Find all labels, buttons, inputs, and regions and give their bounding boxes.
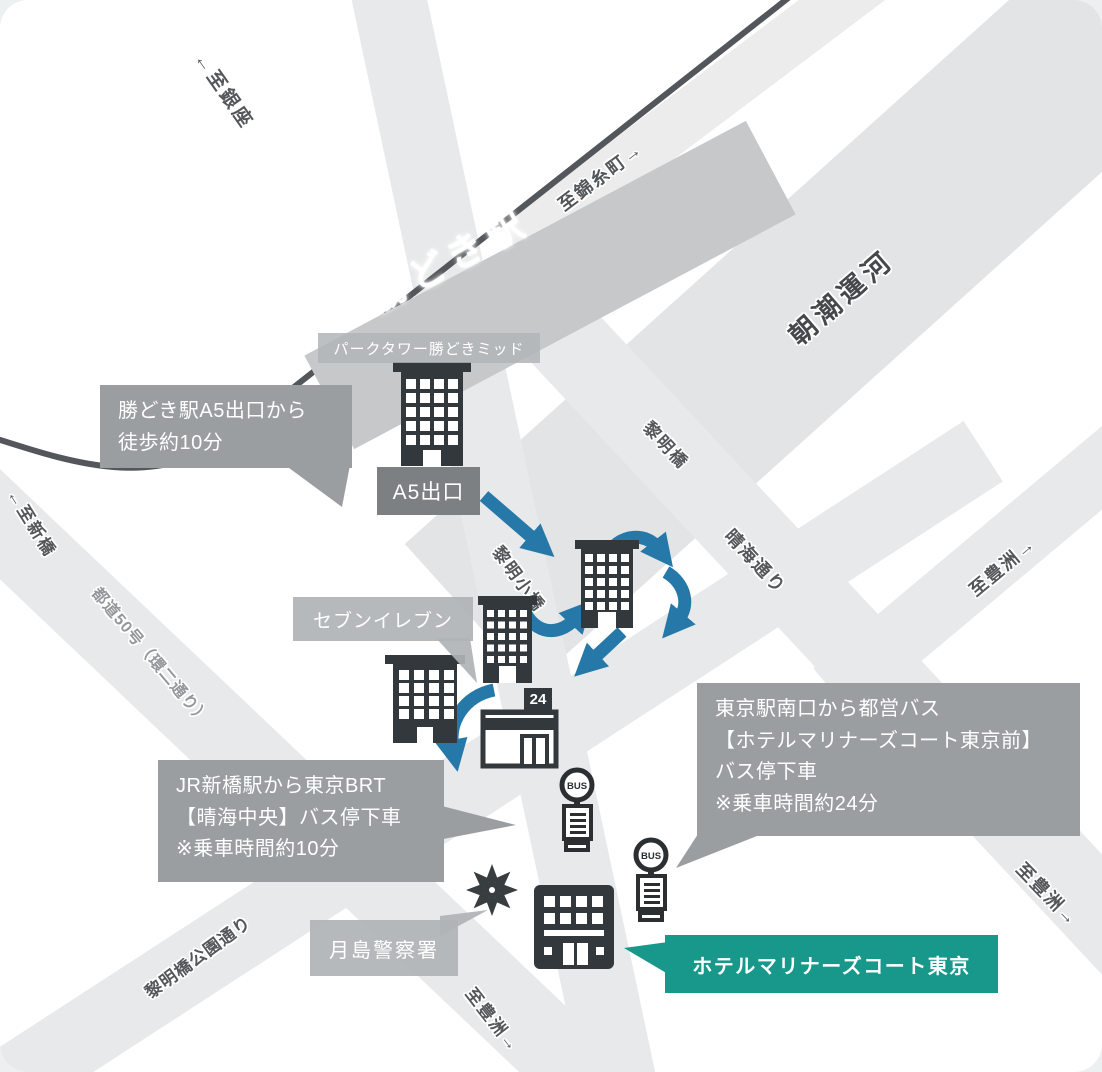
park-tower-label: パークタワー勝どきミッド	[318, 333, 540, 363]
walk-callout-line1: 勝どき駅A5出口から	[118, 396, 334, 428]
park-tower-label-text: パークタワー勝どきミッド	[334, 338, 525, 359]
walk-callout-tail	[280, 465, 360, 515]
a5-exit-label: A5出口	[377, 467, 480, 515]
brt-callout-line1: JR新橋駅から東京BRT	[176, 771, 426, 803]
toei-callout-line3: バス停下車	[715, 757, 1062, 789]
brt-bus-stop-icon: BUS	[556, 766, 600, 854]
police-station-label-tail	[440, 902, 495, 942]
toei-callout: 東京駅南口から都営バス 【ホテルマリナーズコート東京前】 バス停下車 ※乗車時間…	[697, 683, 1080, 836]
access-map: ←至銀座 至錦糸町→ 朝潮運河 勝どき駅 黎明橋 黎明小橋 晴海通り 至豊洲→ …	[0, 0, 1102, 1072]
hotel-label: ホテルマリナーズコート東京	[665, 935, 998, 993]
route-building-icon	[575, 540, 639, 628]
hotel-label-tail	[620, 936, 670, 976]
seven-eleven-label-tail	[432, 638, 482, 688]
seven-eleven-label: セブンイレブン	[293, 597, 473, 641]
park-tower-building-icon	[393, 362, 471, 466]
police-station-label: 月島警察署	[310, 920, 458, 976]
police-station-label-text: 月島警察署	[329, 934, 439, 963]
brt-callout-tail	[438, 800, 523, 845]
a5-exit-label-text: A5出口	[393, 476, 465, 506]
convenience-store-icon: 24	[480, 688, 560, 770]
mid-building-icon	[478, 596, 537, 683]
toei-callout-line4: ※乗車時間約24分	[715, 789, 1062, 821]
bus-sign-text: BUS	[567, 781, 587, 792]
brt-callout-line3: ※乗車時間約10分	[176, 834, 426, 866]
walk-callout: 勝どき駅A5出口から 徒歩約10分	[100, 385, 352, 468]
brt-callout-line2: 【晴海中央】バス停下車	[176, 803, 426, 835]
toei-callout-line1: 東京駅南口から都営バス	[715, 694, 1062, 726]
toei-callout-line2: 【ホテルマリナーズコート東京前】	[715, 726, 1062, 758]
toei-callout-tail	[672, 834, 767, 874]
hotel-building-icon	[534, 885, 614, 969]
store-24-sign: 24	[530, 691, 547, 708]
walk-callout-line2: 徒歩約10分	[118, 428, 334, 460]
seven-eleven-label-text: セブンイレブン	[313, 606, 453, 633]
hotel-label-text: ホテルマリナーズコート東京	[692, 950, 971, 979]
brt-callout: JR新橋駅から東京BRT 【晴海中央】バス停下車 ※乗車時間約10分	[158, 760, 444, 882]
bus-sign-text: BUS	[641, 851, 661, 862]
toei-bus-stop-icon: BUS	[630, 836, 674, 924]
